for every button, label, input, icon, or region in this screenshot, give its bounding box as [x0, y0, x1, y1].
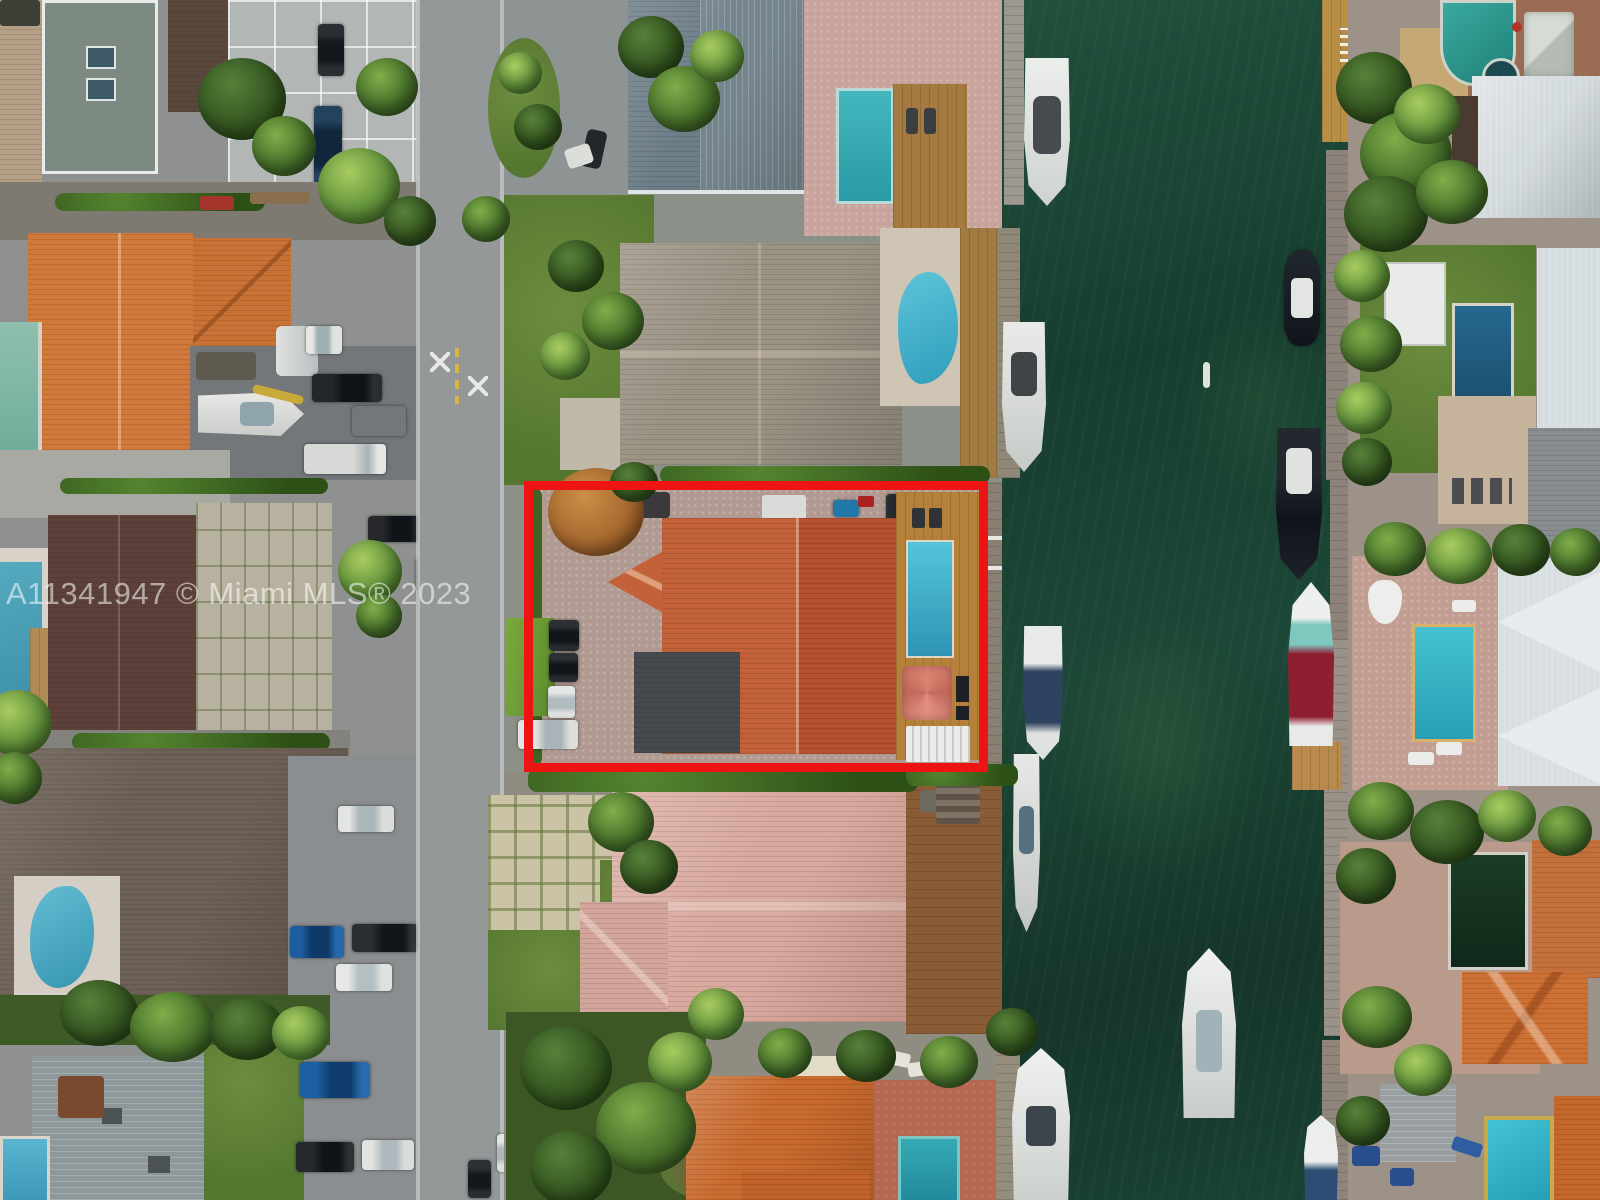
pickup-black: [312, 374, 382, 402]
lane-marking-yellow: [455, 348, 459, 404]
tree: [836, 1030, 896, 1082]
jeep-blue-2: [300, 1062, 370, 1098]
van-white: [306, 326, 342, 354]
pergola-brown: [58, 1076, 104, 1118]
boat-red-canopy: [1288, 582, 1334, 746]
palm-tree: [1334, 250, 1390, 302]
tree: [1426, 528, 1492, 584]
yacht-bottom-windows: [1026, 1106, 1056, 1146]
roof-orange-house: [28, 233, 193, 465]
boat-white-2: [1002, 322, 1046, 472]
pool-pale-green: [0, 322, 42, 450]
palm-tree: [514, 104, 562, 150]
pool-teal-bottom-right: [1484, 1116, 1554, 1200]
boat-navy-cover: [1023, 626, 1063, 760]
lounger: [906, 108, 918, 134]
pool-darkblue-right: [1452, 303, 1514, 407]
tree: [1336, 1096, 1390, 1146]
boat-navy-cabin: [1291, 278, 1313, 318]
tree: [130, 992, 216, 1062]
boat-windshield: [240, 402, 274, 426]
paver-walk: [560, 398, 626, 470]
tree: [530, 1130, 612, 1200]
roof-ridge: [118, 515, 120, 733]
deck-wood-top: [893, 84, 967, 236]
paddleboarder: [1203, 362, 1210, 388]
tree: [1478, 790, 1536, 842]
roof-ridge: [758, 243, 761, 465]
tree: [1538, 806, 1592, 856]
palm-tree: [1394, 1044, 1452, 1096]
lounger-white: [1408, 752, 1434, 765]
tree: [986, 1008, 1038, 1056]
jeep-blue: [290, 926, 344, 958]
boat-2-cockpit: [1011, 352, 1037, 396]
truck-white-box: [304, 444, 386, 474]
loungers-row: [1452, 478, 1512, 504]
boat-dark-2-cabin: [1286, 448, 1312, 494]
tree: [384, 196, 436, 246]
car-red: [352, 406, 406, 436]
deck-furniture-dark: [0, 0, 40, 26]
tree: [1492, 524, 1550, 576]
suv-white: [336, 964, 392, 991]
tree: [582, 292, 644, 350]
palm-tree: [272, 1006, 330, 1060]
roof-orange-gable: [742, 1172, 870, 1200]
palm-tree: [356, 58, 418, 116]
tree: [1348, 782, 1414, 840]
roof-vent: [102, 1108, 122, 1124]
palm-tree: [1340, 316, 1402, 372]
tree: [1394, 84, 1460, 144]
tree: [758, 1028, 812, 1078]
tree: [548, 240, 604, 292]
skylight: [86, 46, 116, 69]
roof-metal-white-2: [1537, 248, 1600, 430]
pool-bottom-left: [0, 1136, 50, 1200]
tree: [60, 980, 138, 1046]
palm-tree: [1336, 382, 1392, 434]
red-marker: [1512, 22, 1522, 32]
hedge: [60, 478, 328, 494]
lounger-white: [1452, 600, 1476, 612]
tree: [1550, 528, 1600, 576]
lounger-white: [1436, 742, 1462, 755]
car-black: [318, 24, 344, 76]
roof-ridge: [118, 233, 121, 465]
roof-tan: [0, 0, 42, 185]
mls-watermark: A11341947 © Miami MLS® 2023: [6, 576, 471, 612]
roof-beige-hips: [620, 243, 902, 465]
palm-tree: [462, 196, 510, 242]
palm-tree: [1342, 438, 1392, 486]
float-platform: [1292, 742, 1342, 790]
car-white-2: [362, 1140, 414, 1170]
car-white: [338, 806, 394, 832]
pool-teal-bottom: [898, 1136, 960, 1200]
stone-patio: [196, 503, 332, 747]
roof-orange-right-c: [1554, 1096, 1600, 1200]
pool-top: [836, 88, 894, 204]
water-shallow-patch: [1050, 620, 1270, 880]
roof-pink-wing-ridge: [580, 902, 668, 1014]
pool-teal-right: [1412, 624, 1476, 742]
playset-blue: [1352, 1146, 1380, 1166]
palm-tree: [498, 52, 542, 94]
playset-blue: [1390, 1168, 1414, 1186]
aerial-photo: A11341947 © Miami MLS® 2023: [0, 0, 1600, 1200]
grill-frames: [936, 784, 980, 824]
roof-orange-right-a: [1532, 840, 1600, 978]
roof-metal-hips: [1472, 76, 1600, 218]
tree: [1336, 848, 1396, 904]
palm-tree: [690, 30, 744, 82]
roof-vent: [148, 1156, 170, 1173]
yard-clutter-red: [200, 196, 234, 210]
pond-dark: [1448, 852, 1528, 970]
listed-property-outline: [524, 481, 988, 772]
paver-pool-deck-right: [1438, 396, 1536, 524]
tree: [1364, 522, 1426, 576]
tree: [1342, 986, 1412, 1048]
tree: [620, 840, 678, 894]
palm-tree: [688, 988, 744, 1040]
boat-slim-seats: [1019, 806, 1034, 854]
lounger: [924, 108, 936, 134]
yacht-mid-deck: [1196, 1010, 1222, 1072]
roof-maroon-house: [48, 515, 198, 733]
junk-pile: [196, 352, 256, 380]
chevron-white: [468, 376, 488, 396]
chevron-white: [430, 352, 450, 372]
dock: [1004, 0, 1024, 205]
yard-clutter: [250, 192, 310, 204]
tree: [252, 116, 316, 176]
pickup-dark: [352, 924, 418, 952]
tree: [520, 1026, 612, 1110]
boat-small-bottom-right: [1304, 1115, 1338, 1200]
tree: [1410, 800, 1484, 864]
tent-white: [1524, 12, 1574, 78]
skylight: [86, 78, 116, 101]
yacht-cabin-dark: [1033, 96, 1061, 154]
roof-edge-trim: [628, 190, 824, 194]
roof-gray-shingle-right: [1528, 428, 1600, 546]
palm-tree: [648, 1032, 712, 1092]
palm-tree: [540, 332, 590, 380]
roof-orange-b-hip: [1462, 972, 1588, 1064]
tree: [1416, 160, 1488, 224]
tree: [920, 1036, 978, 1088]
car-dark-street: [468, 1160, 491, 1198]
truck-dark: [296, 1142, 354, 1172]
